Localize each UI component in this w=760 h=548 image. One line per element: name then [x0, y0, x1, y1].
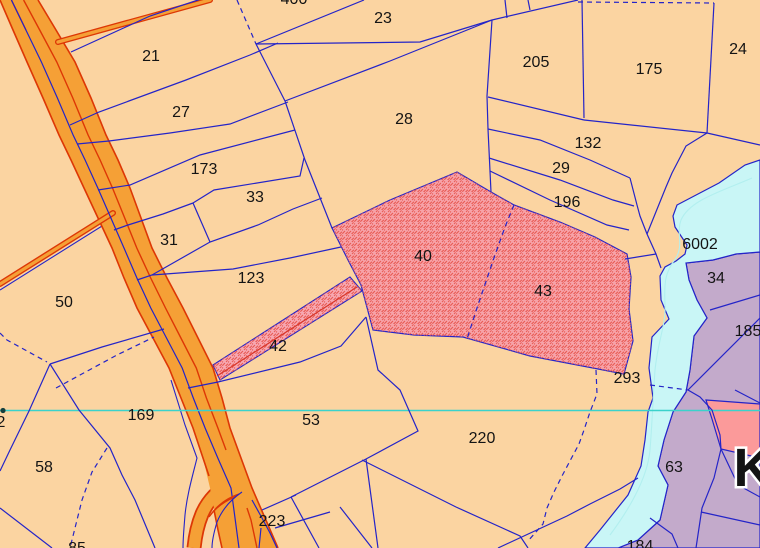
svg-text:196: 196: [554, 194, 581, 211]
svg-text:223: 223: [259, 513, 286, 530]
svg-text:58: 58: [35, 459, 53, 476]
svg-text:24: 24: [729, 41, 747, 58]
svg-text:123: 123: [238, 270, 265, 287]
svg-text:K: K: [734, 438, 760, 498]
svg-text:43: 43: [534, 283, 552, 300]
svg-text:173: 173: [191, 161, 218, 178]
svg-text:205: 205: [523, 54, 550, 71]
svg-text:293: 293: [614, 370, 641, 387]
svg-text:220: 220: [469, 430, 496, 447]
svg-text:184: 184: [627, 538, 654, 548]
svg-text:50: 50: [55, 294, 73, 311]
svg-text:40: 40: [414, 248, 432, 265]
svg-text:34: 34: [707, 270, 725, 287]
svg-text:21: 21: [142, 48, 160, 65]
svg-text:53: 53: [302, 412, 320, 429]
svg-text:2: 2: [0, 414, 6, 431]
svg-text:42: 42: [269, 338, 287, 355]
svg-text:31: 31: [160, 232, 178, 249]
svg-text:28: 28: [395, 111, 413, 128]
svg-text:23: 23: [374, 10, 392, 27]
svg-text:175: 175: [636, 61, 663, 78]
svg-text:6002: 6002: [682, 236, 718, 253]
svg-text:63: 63: [665, 459, 683, 476]
svg-text:400: 400: [281, 0, 308, 8]
svg-text:33: 33: [246, 189, 264, 206]
svg-text:85: 85: [68, 540, 86, 548]
svg-text:29: 29: [552, 160, 570, 177]
svg-text:169: 169: [128, 407, 155, 424]
svg-text:132: 132: [575, 135, 602, 152]
svg-text:185: 185: [735, 323, 760, 340]
svg-text:27: 27: [172, 104, 190, 121]
